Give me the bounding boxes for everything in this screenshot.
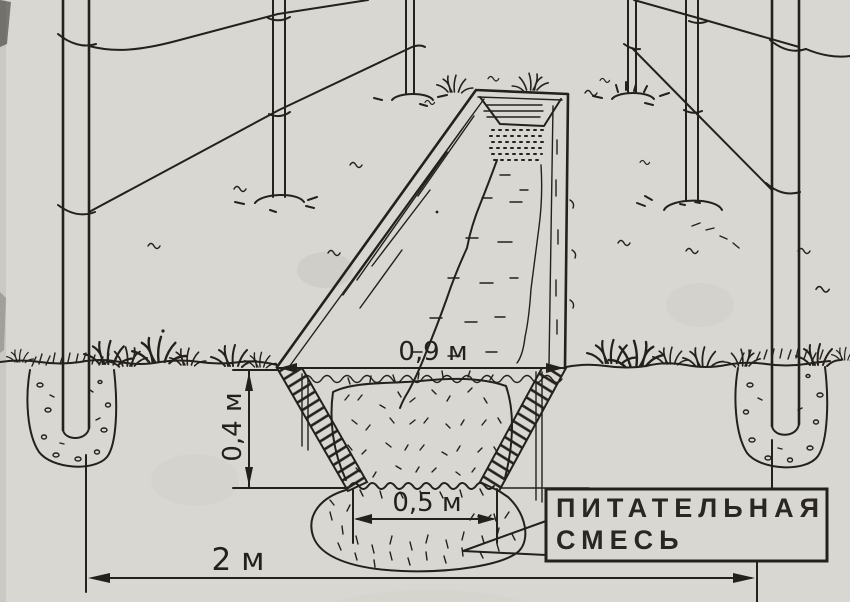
dim-bottom-width-label: 0,5 м — [392, 488, 461, 518]
post-right-middle — [686, 0, 698, 200]
post-left-middle — [273, 0, 285, 197]
post-right-far — [628, 0, 636, 92]
wire-right-lower — [632, 48, 772, 190]
wire-right-top — [634, 0, 799, 47]
trench-rim-inner — [289, 97, 562, 367]
footing-right — [735, 367, 827, 467]
post-right-front — [772, 0, 799, 426]
trench-far-mix-dots — [490, 130, 544, 160]
footing-left — [27, 370, 116, 467]
dim-row-spacing-label: 2 м — [212, 542, 265, 578]
wire-left-top — [89, 0, 368, 50]
callout-leader — [463, 521, 546, 555]
trellis-wires — [58, 0, 850, 214]
trench-cross-section — [277, 368, 589, 571]
diagram-page: 0,9 м 0,4 м 0,5 м 2 м ПИТАТЕЛЬНАЯ СМЕСЬ — [0, 0, 850, 602]
trench-planting-diagram: 0,9 м 0,4 м 0,5 м 2 м ПИТАТЕЛЬНАЯ СМЕСЬ — [0, 0, 850, 602]
trench-rim-outer — [277, 90, 568, 367]
dim-depth-label: 0,4 м — [218, 392, 248, 461]
nutrient-mix-callout: ПИТАТЕЛЬНАЯ СМЕСЬ — [463, 489, 827, 561]
section-wall-right — [480, 368, 566, 491]
section-soil-mound — [332, 371, 512, 480]
dim-top-width-label: 0,9 м — [398, 337, 467, 367]
callout-line1: ПИТАТЕЛЬНАЯ — [556, 493, 825, 523]
wire-left-lower — [89, 46, 425, 213]
dim-bottom-width: 0,5 м — [353, 488, 497, 543]
callout-line2: СМЕСЬ — [556, 525, 685, 555]
